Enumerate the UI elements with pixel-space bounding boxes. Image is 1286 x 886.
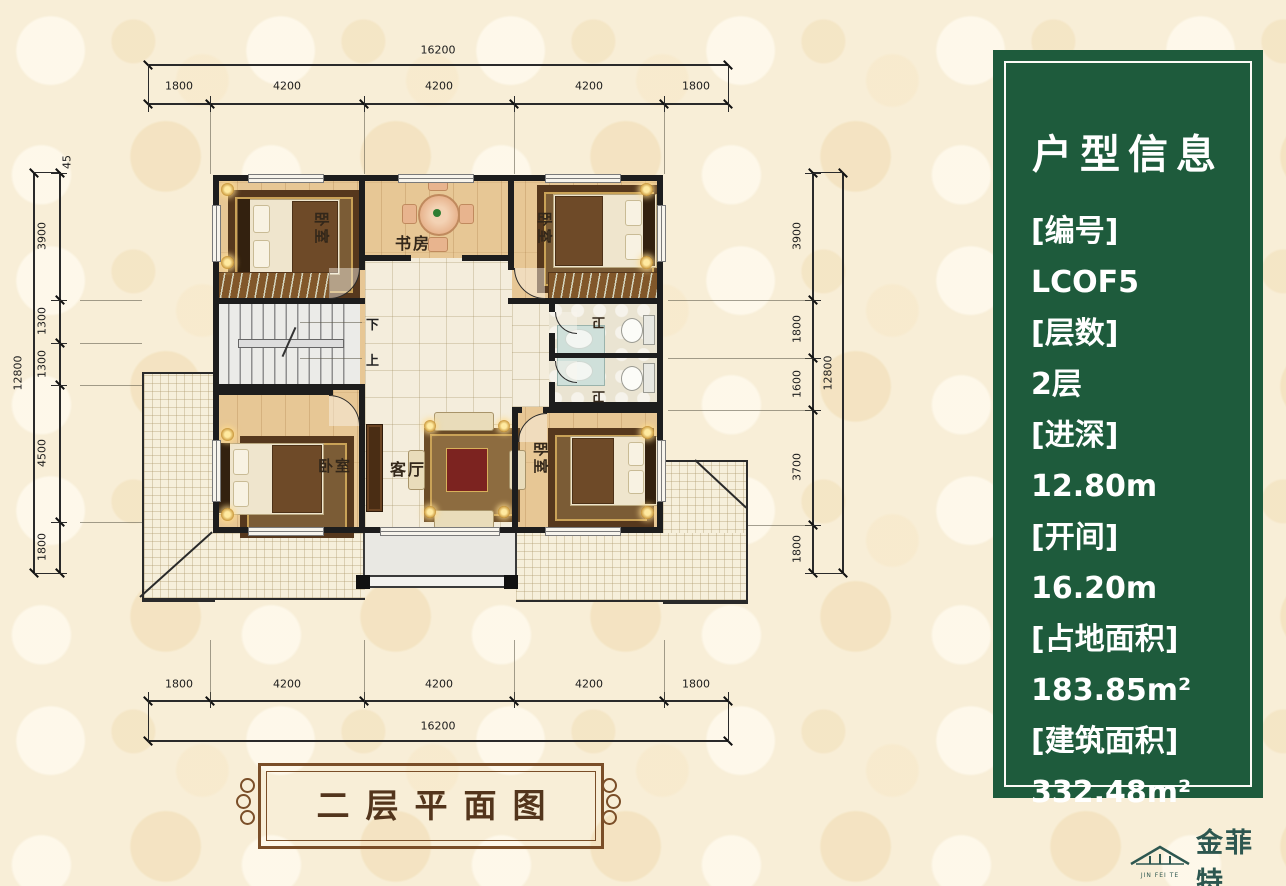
- dimension-line: [59, 173, 61, 573]
- wall: [512, 407, 518, 533]
- stair-down-label: 下: [366, 314, 379, 333]
- dimension-line: [364, 112, 365, 174]
- dimension-line: [80, 300, 142, 301]
- caption-ornament-right: [606, 794, 621, 809]
- bed-blanket: [555, 196, 603, 266]
- decor: [1150, 854, 1170, 864]
- room-label-study: 书房: [395, 230, 431, 254]
- wall-lamp: [641, 426, 654, 439]
- info-item-label: [进深]: [1031, 410, 1241, 461]
- info-item-value: 2层: [1031, 359, 1241, 410]
- dimension-label: 1800: [165, 678, 193, 691]
- dimension-label: 1800: [791, 315, 804, 343]
- dimension-line: [364, 640, 365, 700]
- stair-guide-line: [300, 358, 362, 359]
- stair-guide-line: [300, 322, 362, 323]
- wall: [213, 298, 365, 304]
- dimension-line: [51, 173, 67, 174]
- info-item-label: [层数]: [1031, 308, 1241, 359]
- balcony-post-left: [356, 575, 370, 589]
- logo-name: 金菲特: [1196, 821, 1268, 886]
- dimension-line: [664, 640, 665, 700]
- dimension-line: [51, 300, 67, 301]
- logo-subtext: JIN FEI TE: [1128, 872, 1192, 879]
- bed-headboard: [645, 436, 656, 504]
- corridor-floor: [512, 304, 549, 407]
- dimension-label: 1800: [791, 535, 804, 563]
- dimension-line: [148, 96, 149, 112]
- dimension-line: [51, 343, 67, 344]
- dimension-line: [51, 522, 67, 523]
- info-item-label: [占地面积]: [1031, 614, 1241, 665]
- wall: [359, 255, 411, 261]
- info-item-value: 16.20m: [1031, 563, 1241, 614]
- bed-pillow: [233, 481, 249, 507]
- dimension-line: [514, 640, 515, 700]
- dimension-line: [80, 385, 142, 386]
- dimension-line: [668, 358, 812, 359]
- wardrobe-tl: [216, 272, 330, 300]
- wall: [508, 298, 663, 304]
- dimension-line: [805, 173, 821, 174]
- window: [248, 174, 324, 183]
- window: [248, 527, 324, 536]
- bed-headboard: [238, 199, 250, 273]
- dimension-label: 16200: [421, 720, 456, 733]
- dimension-line: [728, 96, 729, 112]
- floor-plan-caption: 二层平面图: [261, 766, 609, 846]
- wardrobe-tr: [548, 272, 659, 300]
- room-label-bath-lower: 卫: [590, 388, 605, 407]
- dimension-label: 4200: [575, 678, 603, 691]
- dimension-label: 1800: [682, 80, 710, 93]
- caption-ornament-right: [602, 810, 617, 825]
- terrace-right-wrap: [516, 533, 748, 602]
- room-label-bedroom-br: 卧室: [531, 441, 552, 475]
- dimension-line: [210, 96, 211, 112]
- bed-pillow: [253, 205, 270, 233]
- toilet-bowl: [621, 366, 643, 391]
- dimension-label: 12800: [12, 356, 25, 391]
- dimension-line: [80, 343, 142, 344]
- dimension-label: 4500: [36, 439, 49, 467]
- dimension-line: [805, 573, 821, 574]
- bed-pillow: [625, 200, 642, 226]
- dimension-label: 4200: [273, 80, 301, 93]
- info-panel-items: [编号] LCOF5 [层数] 2层 [进深] 12.80m [开间] 16.2…: [1031, 206, 1241, 818]
- sofa: [434, 412, 494, 431]
- dimension-line: [364, 96, 365, 112]
- wall-lamp: [221, 256, 234, 269]
- toilet-tank: [643, 363, 655, 393]
- window: [398, 174, 474, 183]
- dimension-label: 1800: [165, 80, 193, 93]
- study-table-plant: [433, 209, 441, 217]
- room-label-bedroom-bl: 卧室: [318, 455, 352, 476]
- dimension-line: [148, 700, 728, 702]
- window: [545, 527, 621, 536]
- dimension-label: 1300: [36, 350, 49, 378]
- dimension-line: [668, 410, 812, 411]
- dimension-line: [664, 112, 665, 174]
- wall-lamp: [221, 183, 234, 196]
- room-label-bedroom-tl: 卧室: [312, 211, 333, 245]
- dimension-label: 3900: [791, 222, 804, 250]
- window: [657, 205, 666, 262]
- bed-pillow: [628, 470, 644, 494]
- balcony-post-right: [504, 575, 518, 589]
- caption-ornament-right: [602, 778, 617, 793]
- info-panel-title: 户型信息: [993, 122, 1263, 180]
- balcony-door: [380, 527, 500, 536]
- study-chair: [459, 204, 474, 224]
- balcony-railing: [363, 575, 513, 588]
- dimension-line: [664, 96, 665, 112]
- dimension-line: [812, 173, 814, 573]
- info-item-value: 183.85m²: [1031, 665, 1241, 716]
- dimension-line: [51, 385, 67, 386]
- bed-blanket: [272, 445, 322, 513]
- toilet-bowl: [621, 318, 643, 343]
- info-item-label: [编号]: [1031, 206, 1241, 257]
- wall: [549, 298, 555, 312]
- window: [212, 440, 221, 502]
- wall: [462, 255, 514, 261]
- caption-ornament-left: [240, 778, 255, 793]
- bed-blanket: [572, 438, 614, 504]
- logo-roof: JIN FEI TE: [1128, 842, 1192, 879]
- dimension-line: [148, 103, 728, 105]
- dimension-label: 4200: [575, 80, 603, 93]
- dimension-line: [514, 112, 515, 174]
- info-item-label: [开间]: [1031, 512, 1241, 563]
- dimension-label: 16200: [421, 44, 456, 57]
- wall-lamp: [641, 506, 654, 519]
- bed-pillow: [233, 449, 249, 475]
- wall: [543, 407, 663, 413]
- dimension-line: [148, 740, 728, 742]
- dimension-label: 12800: [822, 356, 835, 391]
- bed-pillow: [253, 240, 270, 268]
- wall: [359, 389, 365, 533]
- wall-lamp: [640, 183, 653, 196]
- room-label-bedroom-tr: 卧室: [535, 211, 556, 245]
- dimension-line: [210, 640, 211, 700]
- dimension-label: 4200: [425, 678, 453, 691]
- living-rug-center: [446, 448, 488, 492]
- stair-rail: [238, 339, 344, 348]
- dimension-label: 1600: [791, 370, 804, 398]
- study-chair: [402, 204, 417, 224]
- house-roof-icon: [1128, 842, 1192, 868]
- dimension-line: [514, 96, 515, 112]
- stair-up-label: 上: [366, 350, 379, 369]
- bed-pillow: [628, 442, 644, 466]
- dimension-line: [148, 64, 728, 66]
- floor-lamp: [498, 420, 510, 432]
- caption-ornament-left: [240, 810, 255, 825]
- dimension-label: 1300: [36, 307, 49, 335]
- tv-cabinet: [366, 424, 383, 512]
- dimension-line: [668, 300, 812, 301]
- caption-ornament-left: [236, 794, 251, 809]
- dimension-label: 3900: [36, 222, 49, 250]
- window: [212, 205, 221, 262]
- dimension-label: 1800: [36, 533, 49, 561]
- info-item-label: [建筑面积]: [1031, 716, 1241, 767]
- floor-plan-poster: 1620018004200420042001800162001800420042…: [0, 0, 1286, 886]
- room-label-bath-upper: 卫: [590, 314, 605, 333]
- dimension-line: [210, 112, 211, 174]
- bed-pillow: [625, 234, 642, 260]
- caption-frame: 二层平面图: [258, 763, 604, 849]
- wall-lamp: [221, 508, 234, 521]
- wall: [549, 353, 663, 358]
- dimension-line: [148, 692, 149, 708]
- floor-lamp: [424, 420, 436, 432]
- dimension-label: 4200: [273, 678, 301, 691]
- brand-logo: JIN FEI TE 金菲特: [1128, 838, 1268, 882]
- wall: [213, 389, 333, 395]
- dimension-label: 3700: [791, 453, 804, 481]
- info-item-value: LCOF5: [1031, 257, 1241, 308]
- dimension-line: [728, 692, 729, 708]
- window: [545, 174, 621, 183]
- info-item-value: 332.48m²: [1031, 767, 1241, 818]
- wall-lamp: [640, 256, 653, 269]
- toilet-tank: [643, 315, 655, 345]
- wall-lamp: [221, 428, 234, 441]
- floor-lamp: [498, 506, 510, 518]
- floor-lamp: [424, 506, 436, 518]
- room-label-living: 客厅: [390, 456, 426, 480]
- terrace-left-wrap: [142, 533, 365, 600]
- dimension-label: 4200: [425, 80, 453, 93]
- dimension-label: 45: [61, 155, 74, 169]
- dimension-line: [51, 573, 67, 574]
- dimension-line: [80, 522, 142, 523]
- window: [657, 440, 666, 502]
- info-item-value: 12.80m: [1031, 461, 1241, 512]
- info-panel: 户型信息 [编号] LCOF5 [层数] 2层 [进深] 12.80m [开间]…: [993, 50, 1263, 798]
- dimension-label: 1800: [682, 678, 710, 691]
- dimension-line: [842, 173, 844, 573]
